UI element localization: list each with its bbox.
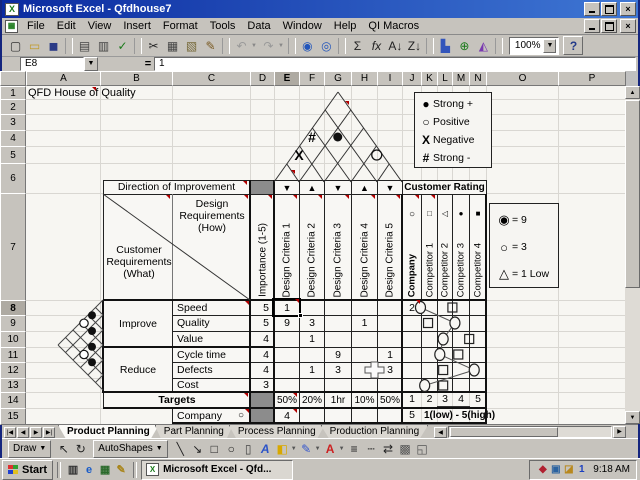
edit-formula-button[interactable]: =	[142, 58, 154, 70]
roof-legend-item: ○Positive	[419, 113, 489, 131]
menu-file[interactable]: File	[21, 19, 51, 33]
roof-legend-label: Positive	[433, 116, 470, 128]
rating-column-symbol: □	[427, 209, 432, 218]
design-criteria-header-3[interactable]: Design Criteria 3	[324, 194, 352, 301]
row-header-12[interactable]: 12	[0, 362, 26, 379]
chart-wizard-icon[interactable]: ▙	[436, 37, 455, 55]
font-color-icon-dropdown[interactable]: ▼	[339, 446, 345, 452]
menu-data[interactable]: Data	[241, 19, 276, 33]
row-header-7[interactable]: 7	[0, 193, 26, 301]
rating-cell[interactable]	[421, 315, 438, 332]
show-desktop-icon[interactable]: ▦	[97, 462, 113, 478]
rating-cell[interactable]	[437, 347, 453, 363]
rating-cell[interactable]	[437, 362, 453, 379]
comment-marker	[166, 195, 170, 199]
gridline-h	[26, 114, 625, 115]
taskbar-divider2	[133, 462, 137, 478]
autoshapes-label: AutoShapes	[98, 443, 153, 454]
rating-legend-item: ◉= 9	[496, 208, 556, 232]
roof-legend-item: ●Strong +	[419, 95, 489, 113]
gridline-h	[26, 163, 625, 164]
direction-arrow-cell[interactable]: ▼	[274, 180, 300, 195]
comment-marker	[244, 195, 248, 199]
map-icon[interactable]: ⊕	[455, 37, 474, 55]
rating-column-header-competitor-3[interactable]: ●Competitor 3	[452, 194, 470, 301]
rating-column-header-competitor-1[interactable]: □Competitor 1	[421, 194, 438, 301]
sort-descending-icon[interactable]: Z↓	[405, 37, 424, 55]
windows-flag-icon	[8, 465, 19, 475]
rating-legend-symbol: △	[496, 266, 512, 282]
row-header-9[interactable]: 9	[0, 315, 26, 332]
menu-view[interactable]: View	[82, 19, 118, 33]
comment-marker	[396, 195, 400, 199]
web-toolbar-icon[interactable]: ◎	[317, 37, 336, 55]
scheduler-tray-icon: ◪	[562, 463, 575, 477]
gridline-h	[26, 146, 625, 147]
rating-legend-item: △= 1 Low	[496, 262, 556, 286]
rating-column-symbol: ◁	[442, 209, 448, 218]
importance-label: Importance (1-5)	[257, 223, 268, 297]
undo-icon-dropdown[interactable]: ▼	[251, 43, 257, 49]
menu-edit[interactable]: Edit	[51, 19, 82, 33]
drawing-icon[interactable]: ◭	[474, 37, 493, 55]
spelling-icon[interactable]: ✓	[113, 37, 132, 55]
workbook-minimize-button[interactable]	[584, 19, 600, 33]
display-settings-tray-icon: ▣	[549, 463, 562, 477]
row-header-1[interactable]: 1	[0, 86, 26, 100]
zoom-dropdown-icon[interactable]: ▼	[543, 39, 556, 53]
comment-marker	[291, 170, 295, 174]
rating-column-symbol: ■	[476, 209, 481, 218]
toolbar-separator	[426, 38, 434, 54]
taskbar-clock: 9:18 AM	[593, 464, 630, 475]
excel-window: X Microsoft Excel - Qfdhouse7 × ▦ FileEd…	[0, 0, 640, 480]
column-header-D[interactable]: D	[250, 71, 275, 86]
draw-menu-button[interactable]: Draw ▼	[8, 440, 51, 458]
column-header-P[interactable]: P	[558, 71, 626, 86]
comment-marker	[431, 195, 435, 199]
fill-color-icon-dropdown[interactable]: ▼	[291, 446, 297, 452]
tab-process-planning[interactable]: Process Planning	[229, 425, 325, 439]
design-criteria-label: Design Criteria 1	[282, 223, 293, 297]
row-header-10[interactable]: 10	[0, 331, 26, 348]
matrix-cell[interactable]	[299, 347, 325, 363]
scroll-up-button[interactable]: ▲	[625, 86, 640, 99]
row-header-15[interactable]: 15	[0, 408, 26, 425]
last-sheet-button[interactable]: ▶|	[43, 427, 55, 438]
matrix-cell[interactable]	[351, 362, 378, 379]
matrix-cell[interactable]	[377, 300, 403, 316]
window-title: Microsoft Excel - Qfdhouse7	[23, 3, 172, 15]
customer-requirements-what-label: Customer Requirements (What)	[105, 244, 173, 296]
column-header-N[interactable]: N	[469, 71, 487, 86]
row-header-14[interactable]: 14	[0, 392, 26, 409]
autoshapes-dropdown-icon: ▼	[156, 445, 163, 452]
save-icon[interactable]: ◼	[44, 37, 63, 55]
column-header-I[interactable]: I	[377, 71, 403, 86]
column-header-H[interactable]: H	[351, 71, 378, 86]
matrix-cell[interactable]: 1	[299, 362, 325, 379]
roof-correlation-legend[interactable]: ●Strong +○PositiveXNegative#Strong -	[414, 92, 492, 168]
autoshapes-menu-button[interactable]: AutoShapes ▼	[93, 440, 167, 458]
matrix-cell[interactable]	[351, 347, 378, 363]
restore-button[interactable]	[601, 2, 617, 16]
insert-hyperlink-icon[interactable]: ◉	[298, 37, 317, 55]
cut-icon[interactable]: ✂	[144, 37, 163, 55]
roof-legend-item: #Strong -	[419, 149, 489, 167]
comment-marker	[295, 299, 299, 303]
wordart-icon[interactable]: A	[257, 441, 274, 457]
matrix-cell[interactable]	[377, 315, 403, 332]
menu-format[interactable]: Format	[157, 19, 204, 33]
first-sheet-button[interactable]: |◀	[4, 427, 16, 438]
comment-marker	[345, 101, 349, 105]
redo-icon-dropdown[interactable]: ▼	[278, 43, 284, 49]
undo-icon[interactable]: ↶	[232, 37, 251, 55]
column-header-J[interactable]: J	[402, 71, 422, 86]
arrow-style-icon[interactable]: ⇄	[380, 441, 397, 457]
menu-bar: ▦ FileEditViewInsertFormatToolsDataWindo…	[2, 18, 638, 35]
rating-column-symbol: ●	[459, 209, 464, 218]
requirement-cell-speed[interactable]: Speed	[172, 300, 251, 316]
roof-legend-label: Strong +	[433, 98, 473, 110]
workbook-restore-button[interactable]	[601, 19, 617, 33]
rating-column-label: Competitor 1	[424, 243, 435, 297]
antivirus-shield-tray-icon: ◆	[536, 463, 549, 477]
matrix-cell[interactable]	[324, 315, 352, 332]
matrix-cell[interactable]: 9	[324, 347, 352, 363]
zoom-value: 100%	[512, 40, 544, 51]
comment-marker	[293, 195, 297, 199]
matrix-cell[interactable]: 1	[377, 347, 403, 363]
rating-cell[interactable]	[402, 362, 422, 379]
internet-explorer-icon[interactable]: e	[81, 462, 97, 478]
outlook-express-icon[interactable]: ✎	[113, 462, 129, 478]
comment-marker	[243, 181, 247, 185]
customer-rating-legend[interactable]: ◉= 9○= 3△= 1 Low	[489, 203, 559, 288]
gridline-v	[100, 86, 101, 424]
drawing-toolbar: Draw ▼ ↖↻ AutoShapes ▼ ╲↘□○▯A◧▼✎▼A▼≡┄⇄▩◱	[2, 438, 638, 458]
roof-legend-symbol: ●	[419, 97, 433, 111]
fill-color-icon[interactable]: ◧	[274, 441, 291, 457]
requirement-cell-defects[interactable]: Defects	[172, 362, 251, 379]
matrix-cell[interactable]	[377, 331, 403, 348]
comment-marker	[92, 87, 96, 91]
column-header-K[interactable]: K	[421, 71, 438, 86]
column-header-O[interactable]: O	[486, 71, 559, 86]
customer-rating-label[interactable]: Customer Rating	[402, 180, 487, 195]
draw-dropdown-icon: ▼	[39, 445, 46, 452]
row-header-3[interactable]: 3	[0, 114, 26, 131]
requirement-cell-quality[interactable]: Quality	[172, 315, 251, 332]
rating-cell[interactable]	[421, 362, 438, 379]
paste-function-icon[interactable]: fx	[367, 37, 386, 55]
design-criteria-header-5[interactable]: Design Criteria 5	[377, 194, 403, 301]
thick-border-v	[102, 300, 104, 393]
column-header-F[interactable]: F	[299, 71, 325, 86]
matrix-cell[interactable]	[351, 300, 378, 316]
column-header-C[interactable]: C	[172, 71, 251, 86]
paste-icon[interactable]: ▧	[182, 37, 201, 55]
gridline-h	[26, 130, 625, 131]
redo-icon[interactable]: ↷	[259, 37, 278, 55]
rating-legend-item: ○= 3	[496, 235, 556, 259]
roof-legend-symbol: ○	[419, 115, 433, 129]
rating-cell[interactable]	[452, 331, 470, 348]
row-header-5[interactable]: 5	[0, 146, 26, 164]
excel-task-button[interactable]: X Microsoft Excel - Qfd...	[141, 460, 293, 480]
name-box[interactable]: E8	[20, 57, 84, 71]
column-header-M[interactable]: M	[452, 71, 470, 86]
print-preview-icon[interactable]: ▥	[94, 37, 113, 55]
print-icon[interactable]: ▤	[75, 37, 94, 55]
importance-value-cell[interactable]: 4	[250, 362, 275, 379]
design-criteria-header-1[interactable]: Design Criteria 1	[274, 194, 300, 301]
excel-task-icon: X	[146, 463, 159, 476]
matrix-cell[interactable]	[324, 331, 352, 348]
row-header-13[interactable]: 13	[0, 378, 26, 393]
column-header-A[interactable]: A	[26, 71, 101, 86]
importance-value-cell[interactable]: 4	[250, 347, 275, 363]
design-criteria-label: Design Criteria 2	[307, 223, 318, 297]
scroll-right-button[interactable]: ▶	[613, 426, 626, 438]
rating-legend-symbol: ○	[496, 240, 512, 255]
gray-cell-d6[interactable]	[250, 180, 275, 195]
minimize-button[interactable]	[584, 2, 600, 16]
text-box-icon[interactable]: ▯	[240, 441, 257, 457]
workbook-icon: ▦	[5, 20, 18, 33]
comment-marker	[293, 409, 297, 413]
tab-product-planning[interactable]: Product Planning	[58, 425, 159, 439]
company-row-symbol: ○	[238, 409, 244, 423]
start-label: Start	[22, 464, 47, 476]
matrix-cell[interactable]	[274, 347, 300, 363]
comment-marker	[293, 393, 297, 397]
comment-marker	[371, 195, 375, 199]
comment-marker	[245, 301, 249, 305]
menu-help[interactable]: Help	[328, 19, 363, 33]
matrix-cell[interactable]: 3	[377, 362, 403, 379]
roof-legend-label: Strong -	[433, 152, 470, 164]
font-color-icon[interactable]: A	[322, 441, 339, 457]
tab-part-planning[interactable]: Part Planning	[155, 425, 233, 439]
dash-style-icon[interactable]: ┄	[363, 441, 380, 457]
direction-arrow-cell[interactable]: ▼	[324, 180, 352, 195]
toolbar-separator	[134, 38, 142, 54]
row-header-4[interactable]: 4	[0, 130, 26, 147]
rating-cell[interactable]	[452, 300, 470, 316]
rating-cell[interactable]	[421, 331, 438, 348]
column-header-E[interactable]: E	[274, 71, 300, 86]
comment-marker	[345, 195, 349, 199]
rating-legend-label: = 9	[512, 214, 527, 226]
thick-border-v	[401, 194, 403, 424]
messenger-tray-icon: 1	[575, 463, 588, 477]
matrix-cell[interactable]: 3	[324, 362, 352, 379]
row-header-8[interactable]: 8	[0, 300, 26, 316]
previous-sheet-button[interactable]: ◀	[17, 427, 29, 438]
scroll-down-button[interactable]: ▼	[625, 411, 640, 424]
rating-cell[interactable]	[437, 331, 453, 348]
rating-column-header-company[interactable]: ○Company	[402, 194, 422, 301]
toolbar-separator	[288, 38, 296, 54]
importance-value-cell[interactable]: 5	[250, 315, 275, 332]
comment-marker	[416, 300, 420, 304]
menu-qi-macros[interactable]: QI Macros	[362, 19, 425, 33]
open-icon[interactable]: ▭	[25, 37, 44, 55]
direction-arrow-cell[interactable]: ▲	[299, 180, 325, 195]
roof-legend-label: Negative	[433, 134, 474, 146]
thick-border-v	[249, 180, 251, 424]
rating-cell[interactable]	[402, 347, 422, 363]
rating-cell[interactable]	[437, 300, 453, 316]
rating-cell[interactable]	[437, 315, 453, 332]
rating-cell[interactable]	[402, 315, 422, 332]
column-header-B[interactable]: B	[100, 71, 173, 86]
fill-handle[interactable]	[298, 313, 303, 318]
design-criteria-header-2[interactable]: Design Criteria 2	[299, 194, 325, 301]
spreadsheet-grid: ABCDEFGHIJKLMNOP123456789101112131415QFD…	[0, 71, 640, 424]
design-criteria-label: Design Criteria 5	[385, 223, 396, 297]
vertical-scrollbar-thumb[interactable]	[625, 100, 640, 288]
help-button[interactable]: ?	[563, 36, 583, 55]
format-painter-icon[interactable]: ✎	[201, 37, 220, 55]
rectangle-icon[interactable]: □	[206, 441, 223, 457]
rating-column-label: Competitor 3	[456, 243, 467, 297]
menu-window[interactable]: Window	[277, 19, 328, 33]
comment-marker	[318, 195, 322, 199]
system-tray: ◆▣◪1 9:18 AM	[529, 460, 637, 480]
formula-bar: E8 ▼ = 1	[2, 57, 638, 71]
toolbar-separator	[495, 38, 503, 54]
tab-production-planning[interactable]: Production Planning	[321, 425, 429, 439]
design-criteria-header-4[interactable]: Design Criteria 4	[351, 194, 378, 301]
threed-icon[interactable]: ◱	[414, 441, 431, 457]
select-pointer-icon[interactable]: ↖	[55, 441, 72, 457]
sort-ascending-icon[interactable]: A↓	[386, 37, 405, 55]
roof-legend-item: XNegative	[419, 131, 489, 149]
new-document-icon[interactable]: ▢	[6, 37, 25, 55]
line-style-icon[interactable]: ≡	[346, 441, 363, 457]
matrix-cell[interactable]	[351, 331, 378, 348]
taskbar: Start ▥e▦✎ X Microsoft Excel - Qfd... ◆▣…	[0, 458, 640, 480]
rating-cell[interactable]	[402, 331, 422, 348]
matrix-cell[interactable]: 1	[299, 331, 325, 348]
direction-arrow-cell[interactable]: ▲	[351, 180, 378, 195]
taskbar-divider	[57, 462, 61, 478]
shadow-icon[interactable]: ▩	[397, 441, 414, 457]
rating-legend-symbol: ◉	[496, 212, 512, 228]
rating-cell[interactable]	[421, 300, 438, 316]
tab-split-button[interactable]: ◀	[434, 427, 447, 438]
view-channels-icon[interactable]: ▥	[65, 462, 81, 478]
rating-cell[interactable]	[452, 315, 470, 332]
sheet-tab-bar: |◀◀▶▶|Product PlanningPart PlanningProce…	[2, 424, 638, 438]
row-header-2[interactable]: 2	[0, 99, 26, 115]
toolbar-separator	[65, 38, 73, 54]
oval-icon[interactable]: ○	[223, 441, 240, 457]
title-bar[interactable]: X Microsoft Excel - Qfdhouse7 ×	[2, 0, 638, 18]
menu-insert[interactable]: Insert	[117, 19, 157, 33]
horizontal-scrollbar-thumb[interactable]	[450, 427, 558, 437]
requirement-cell-cycle-time[interactable]: Cycle time	[172, 347, 251, 363]
design-requirements-how-label: Design Requirements (How)	[176, 198, 248, 246]
menu-tools[interactable]: Tools	[204, 19, 242, 33]
thick-border-v	[485, 194, 487, 424]
free-rotate-icon[interactable]: ↻	[72, 441, 89, 457]
autosum-icon[interactable]: Σ	[348, 37, 367, 55]
rating-legend-label: = 1 Low	[512, 268, 549, 280]
direction-of-improvement-label[interactable]: Direction of Improvement	[103, 180, 250, 195]
task-label: Microsoft Excel - Qfd...	[163, 464, 271, 475]
line-color-icon-dropdown[interactable]: ▼	[315, 446, 321, 452]
next-sheet-button[interactable]: ▶	[30, 427, 42, 438]
zoom-combobox[interactable]: 100% ▼	[509, 37, 560, 55]
comment-marker	[244, 393, 248, 397]
name-box-dropdown-icon[interactable]: ▼	[84, 57, 98, 71]
design-criteria-label: Design Criteria 3	[333, 223, 344, 297]
rating-column-label: Competitor 4	[473, 243, 484, 297]
toolbar-separator	[222, 38, 230, 54]
row-header-6[interactable]: 6	[0, 163, 26, 194]
select-all-corner[interactable]	[0, 71, 26, 86]
rating-cell[interactable]	[452, 362, 470, 379]
cell-a1-title[interactable]: QFD House of Quality	[28, 87, 178, 100]
line-icon[interactable]: ╲	[172, 441, 189, 457]
draw-label: Draw	[13, 443, 36, 454]
matrix-cell[interactable]: 9	[274, 315, 300, 332]
standard-toolbar: ▢▭◼▤▥✓✂▦▧✎↶▼↷▼◉◎ΣfxA↓Z↓▙⊕◭ 100% ▼ ?	[2, 35, 638, 57]
design-criteria-label: Design Criteria 4	[359, 223, 370, 297]
rating-cell[interactable]	[452, 347, 470, 363]
rating-column-header-competitor-2[interactable]: ◁Competitor 2	[437, 194, 453, 301]
column-header-L[interactable]: L	[437, 71, 453, 86]
start-button[interactable]: Start	[2, 460, 53, 480]
sheet-tabs: Product PlanningPart PlanningProcess Pla…	[58, 425, 438, 439]
matrix-cell[interactable]	[274, 362, 300, 379]
rating-legend-label: = 3	[512, 241, 527, 253]
rating-cell[interactable]	[421, 347, 438, 363]
matrix-cell[interactable]	[324, 300, 352, 316]
line-color-icon[interactable]: ✎	[298, 441, 315, 457]
matrix-cell[interactable]	[274, 331, 300, 348]
roof-legend-symbol: #	[419, 151, 433, 165]
comment-marker	[268, 195, 272, 199]
importance-header-cell[interactable]: Importance (1-5)	[250, 194, 275, 301]
group-label-improve[interactable]: Improve	[103, 300, 173, 348]
workbook-close-button[interactable]: ×	[620, 19, 636, 33]
rating-column-label: Competitor 2	[440, 243, 451, 297]
group-label-reduce[interactable]: Reduce	[103, 347, 173, 393]
toolbar-separator	[338, 38, 346, 54]
matrix-cell[interactable]: 1	[351, 315, 378, 332]
column-header-G[interactable]: G	[324, 71, 352, 86]
arrow-icon[interactable]: ↘	[189, 441, 206, 457]
comment-marker	[415, 195, 419, 199]
copy-icon[interactable]: ▦	[163, 37, 182, 55]
excel-app-icon: X	[5, 3, 19, 16]
row-header-11[interactable]: 11	[0, 347, 26, 363]
roof-legend-symbol: X	[419, 133, 433, 147]
formula-input[interactable]: 1	[154, 57, 636, 71]
direction-arrow-cell[interactable]: ▼	[377, 180, 403, 195]
rating-column-symbol: ○	[409, 209, 415, 220]
close-button[interactable]: ×	[620, 2, 636, 16]
rating-column-label: Company	[407, 254, 418, 297]
comment-marker	[245, 409, 249, 413]
